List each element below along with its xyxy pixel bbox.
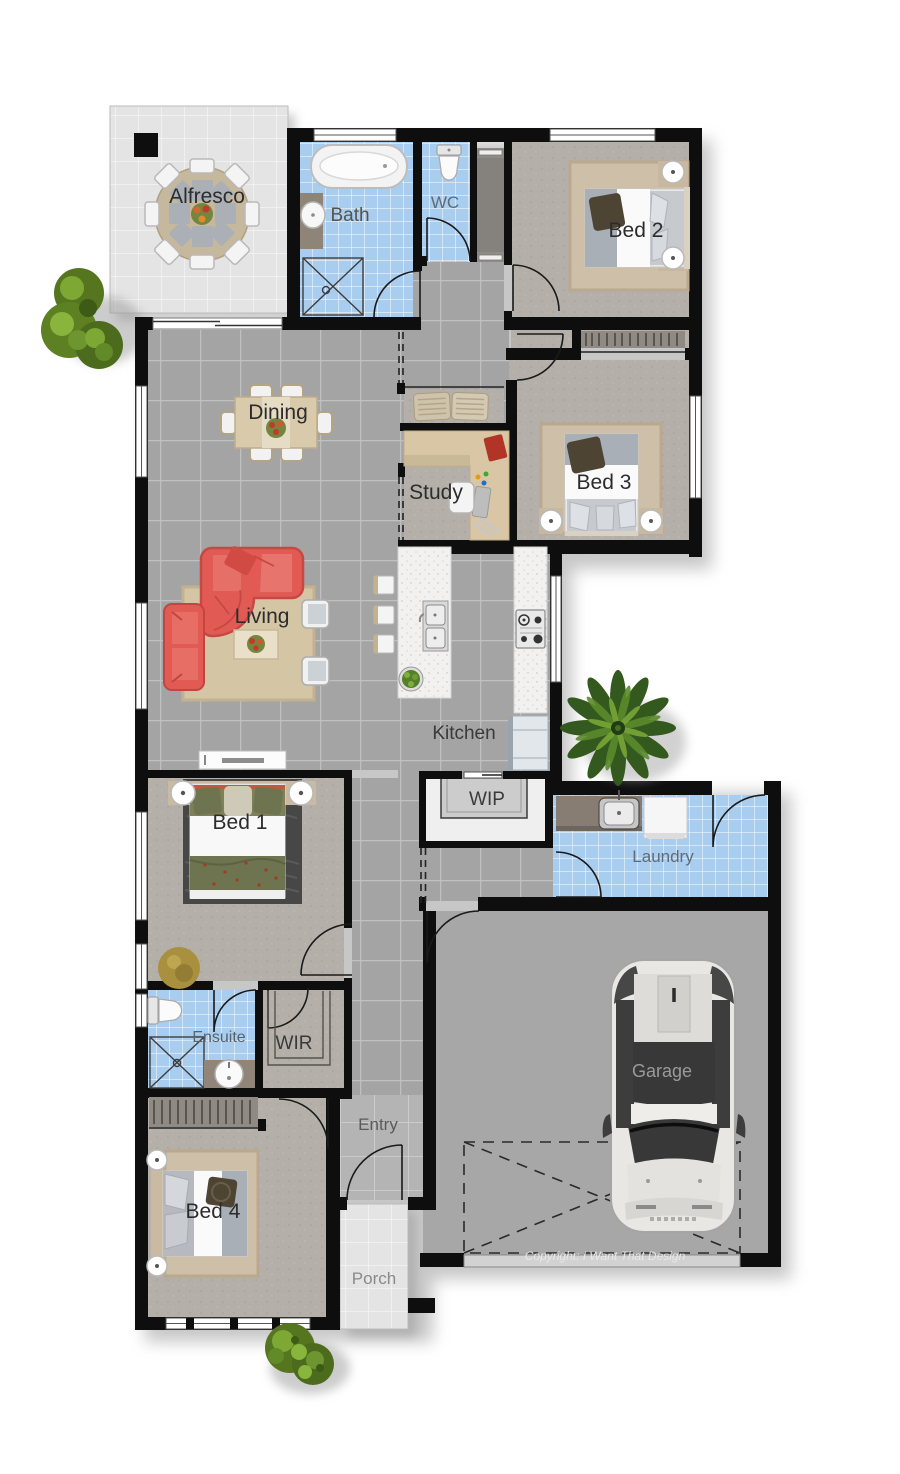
- svg-text:Study: Study: [409, 481, 463, 504]
- svg-text:Garage: Garage: [632, 1061, 692, 1081]
- svg-text:Laundry: Laundry: [632, 847, 694, 866]
- svg-text:Living: Living: [235, 605, 290, 628]
- svg-text:Alfresco: Alfresco: [169, 185, 245, 208]
- svg-text:Porch: Porch: [352, 1269, 396, 1288]
- svg-text:Bed 3: Bed 3: [577, 471, 632, 494]
- svg-text:Bed 2: Bed 2: [609, 219, 664, 242]
- svg-text:Bed 4: Bed 4: [186, 1200, 241, 1223]
- svg-text:WIR: WIR: [276, 1033, 313, 1054]
- svg-text:Bed 1: Bed 1: [213, 811, 268, 834]
- svg-text:Entry: Entry: [358, 1115, 398, 1134]
- svg-text:WC: WC: [431, 193, 459, 212]
- svg-text:WIP: WIP: [469, 789, 505, 810]
- svg-text:Copyright: I Want That Design: Copyright: I Want That Design: [525, 1249, 686, 1263]
- svg-text:Dining: Dining: [248, 401, 308, 424]
- svg-text:Ensuite: Ensuite: [192, 1029, 245, 1046]
- svg-text:Bath: Bath: [330, 205, 369, 226]
- svg-text:Kitchen: Kitchen: [432, 723, 495, 744]
